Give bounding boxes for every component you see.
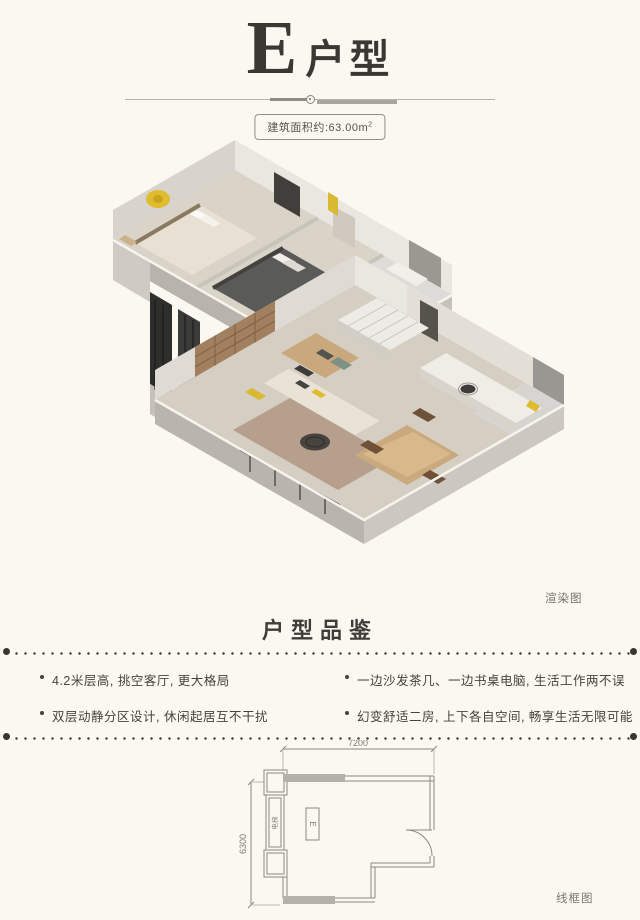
unit-letter: E	[247, 10, 300, 86]
dim-width-label: 7200	[348, 740, 368, 748]
door-arc	[406, 830, 432, 856]
wireframe-caption: 线框图	[556, 891, 594, 905]
shaft-label: 电梯	[270, 816, 279, 830]
area-badge: 建筑面积约:63.00m2	[254, 114, 385, 140]
feature-item: 双层动静分区设计, 休闲起居互不干扰	[40, 706, 330, 725]
divider-bar-right	[317, 100, 397, 104]
feature-item: 幻变舒适二房, 上下各自空间, 畅享生活无限可能	[345, 706, 635, 725]
divider-ornament-icon	[306, 95, 315, 104]
wireframe-floorplan: 7200 6300 E 电梯 线框图	[0, 740, 640, 920]
title-divider	[125, 95, 495, 105]
dotted-divider-bottom	[10, 733, 630, 740]
feature-item: 4.2米层高, 挑空客厅, 更大格局	[40, 670, 330, 689]
dim-height-label: 6300	[238, 834, 248, 854]
page-header: E 户型	[0, 10, 640, 86]
bullet-icon	[40, 675, 44, 679]
divider-bar-left	[270, 98, 308, 101]
bullet-icon	[345, 711, 349, 715]
bullet-icon	[40, 711, 44, 715]
wall-fill	[283, 774, 345, 782]
unit-marker-label: E	[308, 821, 317, 826]
coffee-table	[300, 434, 330, 451]
dotted-divider-top	[10, 648, 630, 655]
floorplan-brochure-page: { "colors": { "background": "#faf8f0", "…	[0, 0, 640, 920]
wall-fill	[283, 896, 335, 904]
unit-suffix: 户型	[305, 27, 393, 85]
features-section-title: 户型品鉴	[0, 613, 640, 645]
floorplan-3d-render	[0, 0, 640, 615]
render-caption: 渲染图	[545, 590, 583, 606]
bullet-icon	[345, 675, 349, 679]
feature-item: 一边沙发茶几、一边书桌电脑, 生活工作两不误	[345, 670, 635, 689]
page-title: E 户型	[0, 10, 640, 86]
